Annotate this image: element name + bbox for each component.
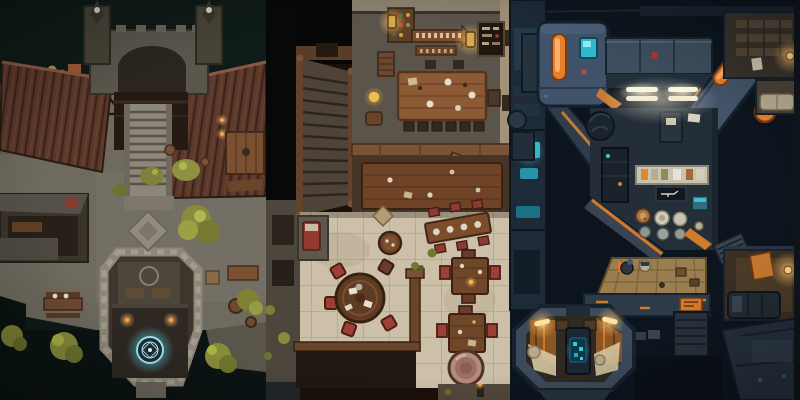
triptych-canvas: [0, 0, 800, 400]
battle-map-triptych: [0, 0, 800, 400]
vignette-overlay: [0, 0, 800, 400]
